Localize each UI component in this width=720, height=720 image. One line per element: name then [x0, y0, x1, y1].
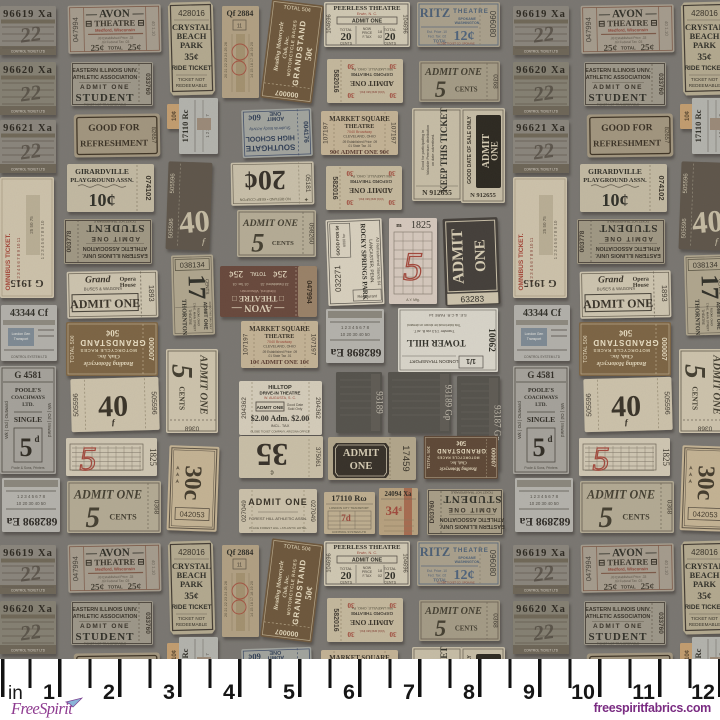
svg-text:4: 4 — [223, 680, 235, 704]
svg-text:5: 5 — [283, 680, 295, 704]
svg-text:8: 8 — [463, 680, 475, 704]
svg-text:FreeSpirit: FreeSpirit — [10, 699, 73, 718]
svg-text:6: 6 — [343, 680, 355, 704]
svg-text:7: 7 — [403, 680, 415, 704]
svg-text:freespiritfabrics.com: freespiritfabrics.com — [594, 701, 712, 715]
svg-text:2: 2 — [103, 680, 115, 704]
svg-text:9: 9 — [523, 680, 535, 704]
svg-text:3: 3 — [163, 680, 175, 704]
svg-text:10: 10 — [571, 680, 595, 704]
